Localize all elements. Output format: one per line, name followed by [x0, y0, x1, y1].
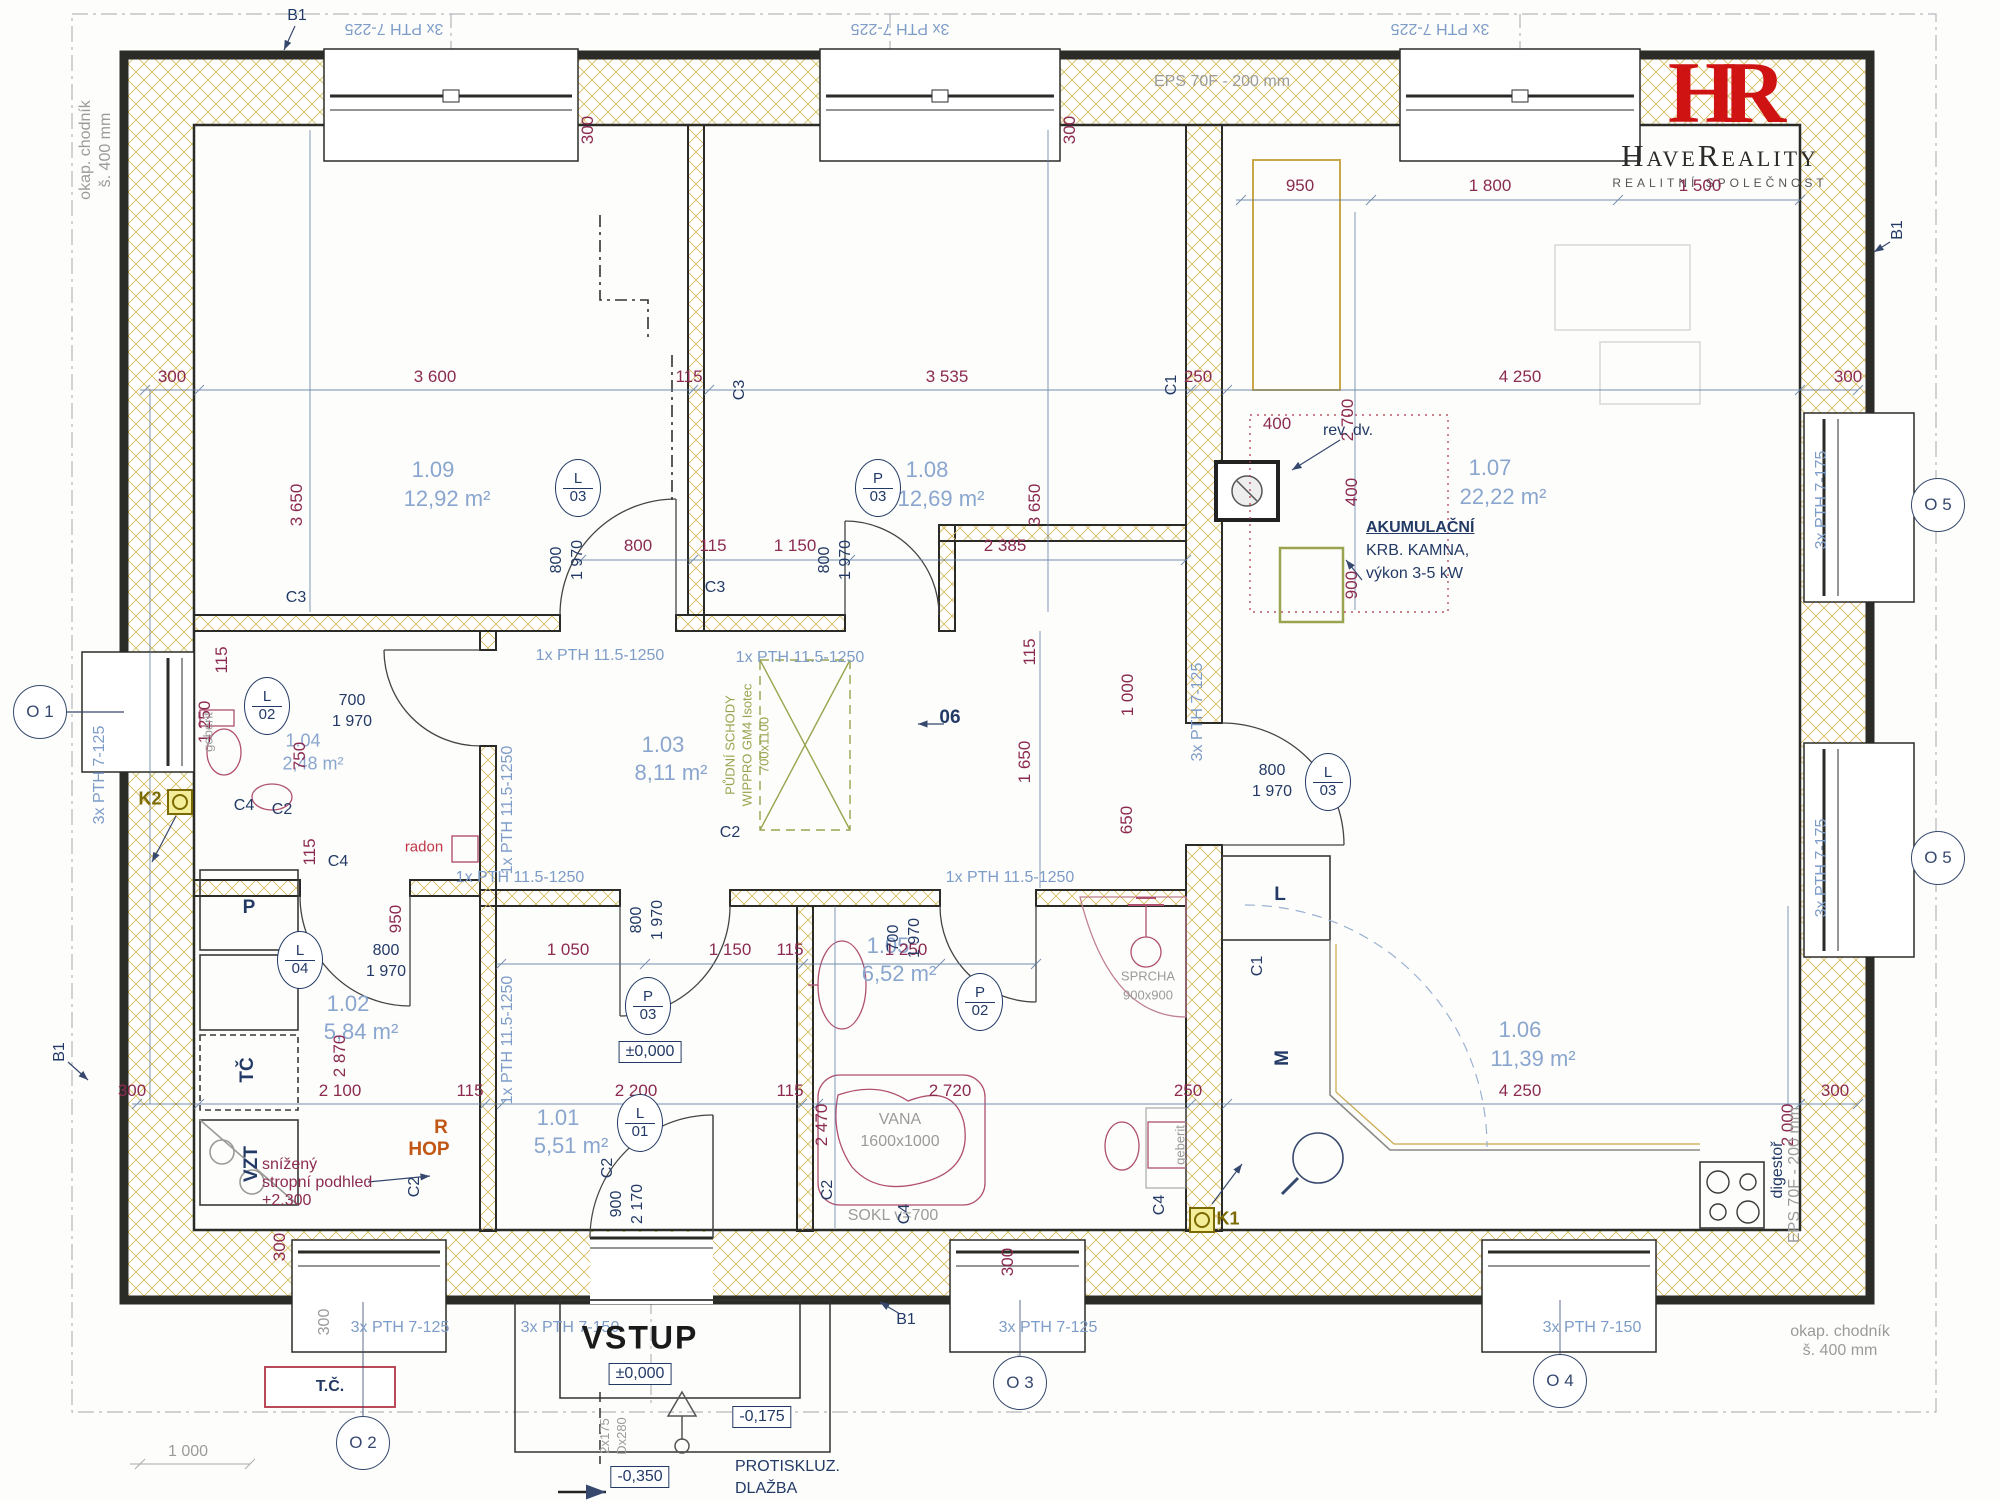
doordim-l03c: 800 1 970 [1252, 761, 1292, 803]
dim-115-b1: 115 [456, 1081, 483, 1101]
tc-box-label: T.Č. [316, 1378, 344, 1396]
dim-1050: 1 050 [547, 940, 590, 960]
c3-walla: C3 [731, 380, 749, 400]
room-103-area: 8,11 m² [635, 760, 708, 786]
pth-7175-r1: 3x PTH 7-175 [1813, 451, 1831, 550]
level-terrain: -0,350 [610, 1466, 669, 1488]
eps-right: EPS 70F - 200 mm [1786, 1107, 1804, 1243]
dim-300-bw1: 300 [270, 1233, 290, 1261]
room-108-number: 1.08 [906, 457, 949, 483]
dim-115-104: 115 [212, 646, 232, 673]
dim-1500: 1 500 [1679, 176, 1722, 196]
room-107-area: 22,22 m² [1460, 484, 1547, 510]
doordim-p03b: 800 1 970 [627, 900, 669, 940]
dim-250-t: 250 [1184, 367, 1212, 387]
dim-750: 750 [290, 742, 310, 770]
geberit-2: geberit [1173, 1125, 1188, 1165]
door-l01-entry-number: 01 [632, 1124, 649, 1141]
marker-o4: O 4 [1533, 1354, 1587, 1408]
dim-2385: 2 385 [984, 536, 1027, 556]
sprcha-2: 900x900 [1123, 988, 1173, 1003]
pth-115-3: 1x PTH 11.5-1250 [456, 869, 585, 887]
dim-950-v: 950 [386, 905, 406, 933]
marker-o3: O 3 [993, 1356, 1047, 1410]
room-109-number: 1.09 [412, 457, 455, 483]
doordim-l04: 800 1 970 [366, 941, 406, 983]
dim-300-br: 300 [1821, 1081, 1849, 1101]
dim-3600: 3 600 [414, 367, 457, 387]
pth-7175-r2: 3x PTH 7-175 [1813, 819, 1831, 918]
room-101-number: 1.01 [537, 1105, 580, 1131]
room-102-number: 1.02 [327, 991, 370, 1017]
dim-300-w1: 300 [578, 116, 598, 144]
dim-3535: 3 535 [926, 367, 969, 387]
sprcha-1: SPRCHA [1121, 969, 1175, 984]
vana-1: VANA [879, 1111, 921, 1129]
pth-7225-1: 3x PTH 7-225 [345, 19, 444, 37]
dim-4250-b: 4 250 [1499, 1081, 1542, 1101]
doordim-l01: 900 2 170 [607, 1184, 649, 1224]
dim-400-v1: 400 [1342, 478, 1362, 506]
door-l03-109-number: 03 [570, 489, 587, 506]
okap-right-2: š. 400 mm [1803, 1342, 1878, 1360]
door-l01-entry: L01 [617, 1094, 663, 1152]
dim-2720: 2 720 [929, 1081, 972, 1101]
kitchen-m: M [1272, 1050, 1294, 1066]
dim-300-bw2: 300 [998, 1248, 1018, 1276]
pth-7125-b1: 3x PTH 7-125 [351, 1319, 450, 1337]
room-101-area: 5,51 m² [534, 1133, 609, 1159]
marker-o5a: O 5 [1911, 478, 1965, 532]
room-107-number: 1.07 [1469, 455, 1512, 481]
pth-115-2: 1x PTH 11.5-1250 [736, 649, 865, 667]
dim-1150-h2: 1 150 [709, 940, 752, 960]
vstup: VSTUP [582, 1320, 699, 1357]
dim-1000-hall: 1 000 [1118, 674, 1138, 717]
appliance-p: P [243, 897, 256, 919]
c2-102: C2 [406, 1177, 424, 1197]
door-l03-109-letter: L [563, 471, 594, 489]
dim-300-tl: 300 [158, 367, 186, 387]
door-p02-105-number: 02 [972, 1003, 989, 1020]
dim-250-b: 250 [1174, 1081, 1202, 1101]
pth-7225-3: 3x PTH 7-225 [1391, 19, 1490, 37]
dim-400-h: 400 [1263, 414, 1291, 434]
dim-2870: 2 870 [330, 1035, 350, 1078]
appliance-tc: TČ [237, 1057, 259, 1082]
dim-3650-r: 3 650 [1025, 484, 1045, 527]
c2-105: C2 [819, 1180, 837, 1200]
pth-115-1: 1x PTH 11.5-1250 [536, 647, 665, 665]
door-l03-107: L03 [1305, 753, 1351, 811]
k2-label: K2 [138, 789, 161, 810]
door-l02-104-number: 02 [259, 707, 276, 724]
c3-109: C3 [286, 589, 306, 607]
rev-dv: rev. dv. [1323, 422, 1373, 440]
dim-4250-t: 4 250 [1499, 367, 1542, 387]
marker-o1: O 1 [13, 685, 67, 739]
dim-900-v: 900 [1342, 571, 1362, 599]
c2-104: C2 [272, 801, 292, 819]
annotation-layer: 1.0912,92 m²1.0812,69 m²1.0722,22 m²1.03… [0, 0, 2000, 1500]
c4-radon: C4 [328, 853, 348, 871]
dim-115-b2: 115 [776, 1081, 803, 1101]
okap-left-2: š. 400 mm [97, 113, 115, 188]
dim-115-h1: 115 [699, 536, 726, 556]
c1-kitchen: C1 [1249, 956, 1267, 976]
akumulacni-3: výkon 3-5 kW [1366, 565, 1463, 583]
okap-left-1: okap. chodník [77, 100, 95, 200]
dim-1650: 1 650 [1015, 741, 1035, 784]
doordim-p03a: 800 1 970 [815, 540, 857, 580]
dim-115-hall: 115 [1020, 638, 1040, 665]
dim-1800: 1 800 [1469, 176, 1512, 196]
akumulacni-2: KRB. KAMNA, [1366, 542, 1469, 560]
room-108-area: 12,69 m² [898, 486, 985, 512]
door-l03-107-letter: L [1313, 765, 1344, 783]
dim-300-bl: 300 [118, 1081, 146, 1101]
kitchen-l: L [1274, 884, 1286, 906]
dim-800-h1: 800 [624, 536, 652, 556]
level-vstup: ±0,000 [609, 1363, 672, 1385]
vana-2: 1600x1000 [860, 1133, 939, 1151]
door-p02-105: P02 [957, 973, 1003, 1031]
door-l04-102: L04 [277, 931, 323, 989]
door-p03-101-number: 03 [640, 1007, 657, 1024]
door-l02-104: L02 [244, 677, 290, 735]
geberit-1: geberit [201, 712, 216, 752]
c1-top: C1 [1163, 375, 1181, 395]
protiskluz-2: DLAŽBA [735, 1480, 797, 1498]
dim-115-t1: 115 [675, 367, 702, 387]
k1-label: K1 [1216, 1209, 1239, 1230]
pth-7150-b2: 3x PTH 7-150 [1543, 1319, 1642, 1337]
b1-left: B1 [51, 1042, 69, 1062]
pth-115-6: 1x PTH 11.5-1250 [499, 976, 517, 1105]
dim-650: 650 [1117, 806, 1137, 834]
doordim-l02: 700 1 970 [332, 691, 372, 733]
room-106-number: 1.06 [1499, 1017, 1542, 1043]
door-p03-101: P03 [625, 977, 671, 1035]
okap-right-1: okap. chodník [1790, 1323, 1890, 1341]
door-l04-102-letter: L [285, 943, 316, 961]
dim-2100: 2 100 [319, 1081, 362, 1101]
digestor: digestoř [1769, 1142, 1787, 1199]
dim-115-h2: 115 [776, 940, 803, 960]
room-106-area: 11,39 m² [1490, 1046, 1575, 1072]
door-p02-105-letter: P [965, 985, 996, 1003]
dim-3650-l: 3 650 [287, 484, 307, 527]
c4-104a: C4 [234, 797, 254, 815]
podhled-2: stropní podhled [262, 1174, 372, 1192]
pudni-schody: PŮDNÍ SCHODY WIPPRO GM4 Isotec 700x1100 [723, 684, 774, 807]
c4-k1: C4 [1151, 1195, 1169, 1215]
doordim-l03a: 800 1 970 [547, 540, 589, 580]
door-p03-108-number: 03 [870, 489, 887, 506]
dim-2470: 2 470 [812, 1104, 832, 1147]
dim-115-102: 115 [300, 838, 320, 865]
pth-7125-b2: 3x PTH 7-125 [999, 1319, 1098, 1337]
hop-2: HOP [408, 1139, 449, 1161]
marker-o5b: O 5 [1911, 831, 1965, 885]
marker-o2: O 2 [336, 1416, 390, 1470]
door-l01-entry-letter: L [625, 1106, 656, 1124]
radon: radon [405, 839, 443, 856]
steps: 2x175 Dx280 [597, 1417, 631, 1455]
door-p03-108-letter: P [863, 471, 894, 489]
dim-1000-site: 1 000 [168, 1443, 208, 1461]
eps-top: EPS 70F - 200 mm [1154, 73, 1290, 91]
doordim-p02: 700 1 970 [884, 918, 926, 958]
pth-7125-left: 3x PTH 7-125 [91, 726, 109, 825]
dim-1150-h1: 1 150 [774, 536, 817, 556]
protiskluz-1: PROTISKLUZ. [735, 1458, 840, 1476]
pth-7125-hall: 3x PTH 7-125 [1189, 663, 1207, 762]
door-l03-107-number: 03 [1320, 783, 1337, 800]
room-109-area: 12,92 m² [404, 486, 491, 512]
marker-06: 06 [939, 707, 960, 729]
hop-1: R [434, 1117, 448, 1139]
c3-108: C3 [705, 579, 725, 597]
c4-105: C4 [896, 1204, 914, 1224]
dim-950-lr: 950 [1286, 176, 1314, 196]
podhled-3: +2.300 [262, 1192, 311, 1210]
b1-top: B1 [287, 7, 307, 25]
room-103-number: 1.03 [642, 732, 685, 758]
pth-115-4: 1x PTH 11.5-1250 [946, 869, 1075, 887]
dim-300-w2: 300 [1060, 116, 1080, 144]
c2-hall: C2 [720, 824, 740, 842]
floorplan-page: HR HaveReality REALITNÍ SPOLEČNOST 1.091… [0, 0, 2000, 1500]
pth-7225-2: 3x PTH 7-225 [851, 19, 950, 37]
pth-115-5: 1x PTH 11.5-1250 [499, 746, 517, 875]
level-porch: -0,175 [732, 1406, 791, 1428]
b1-bottom: B1 [896, 1311, 916, 1329]
level-101: ±0,000 [619, 1041, 682, 1063]
appliance-vzt: VZT [241, 1146, 263, 1182]
room-105-area: 6,52 m² [862, 961, 937, 987]
sokl: SOKL v=700 [848, 1207, 939, 1225]
door-p03-108: P03 [855, 459, 901, 517]
door-l04-102-number: 04 [292, 961, 309, 978]
door-l03-109: L03 [555, 459, 601, 517]
akumulacni-1: AKUMULAČNÍ [1366, 519, 1474, 537]
dim-300-grey: 300 [316, 1309, 334, 1336]
c2-101: C2 [599, 1158, 617, 1178]
door-l02-104-letter: L [252, 689, 283, 707]
podhled-1: snížený [262, 1156, 317, 1174]
dim-300-tr: 300 [1834, 367, 1862, 387]
b1-right: B1 [1889, 220, 1907, 240]
door-p03-101-letter: P [633, 989, 664, 1007]
